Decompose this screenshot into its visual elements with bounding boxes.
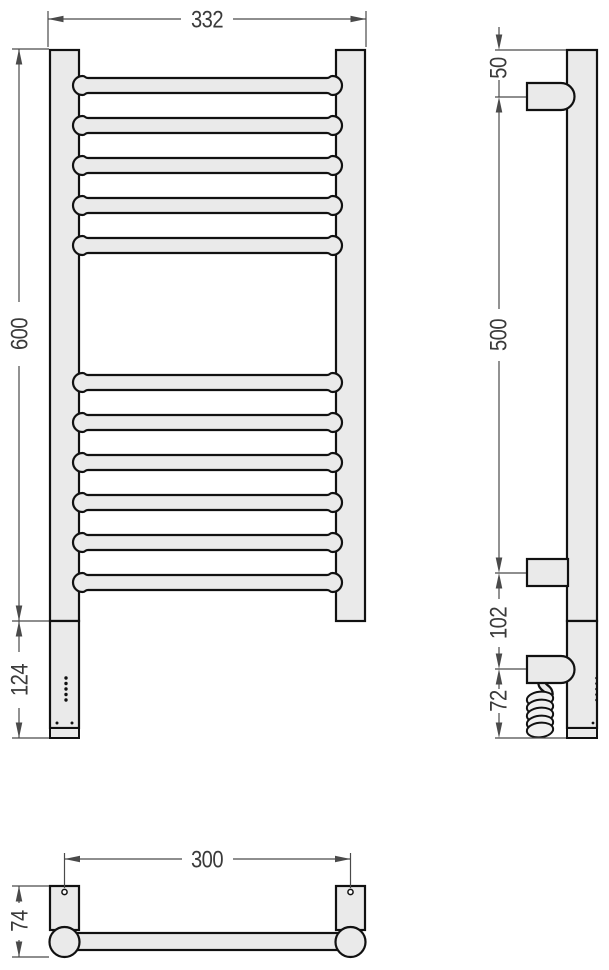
dim-depth: 74 <box>6 886 49 957</box>
dim-top-to-upper-bracket: 50 <box>485 27 512 97</box>
side-post <box>567 50 597 621</box>
side-button-mark <box>592 722 595 725</box>
crossbar <box>70 933 344 950</box>
rail <box>73 116 342 135</box>
post-section-right <box>336 927 366 957</box>
dim-mounting-centers-label: 300 <box>191 846 223 873</box>
front-left-post <box>50 50 79 621</box>
side-bottom-cap <box>567 728 597 738</box>
dim-bracket-spacing-label: 500 <box>485 319 512 351</box>
rail <box>73 373 342 392</box>
dim-control-height-label: 124 <box>6 664 33 696</box>
rail <box>73 236 342 255</box>
dim-bracket-to-inlet-label: 102 <box>485 607 512 639</box>
front-rails <box>73 76 342 592</box>
mounting-hole-right <box>348 889 353 894</box>
bottom-view: 300 74 <box>6 846 366 957</box>
cable-inlet-bracket <box>527 656 575 683</box>
rail <box>73 196 342 215</box>
bottom-cap <box>50 728 79 738</box>
dim-bracket-to-inlet: 102 <box>485 573 512 669</box>
power-cable-coil <box>526 690 554 738</box>
post-section-left <box>50 927 80 957</box>
mounting-hole-left <box>62 889 67 894</box>
dim-front-height: 600 <box>6 49 49 621</box>
rail <box>73 453 342 472</box>
rail <box>73 156 342 175</box>
dim-top-offset-label: 50 <box>485 57 512 79</box>
rail <box>73 573 342 592</box>
rail <box>73 413 342 432</box>
dim-front-width: 332 <box>48 6 366 47</box>
dim-front-width-label: 332 <box>191 6 223 33</box>
dim-inlet-to-bottom-label: 72 <box>485 690 512 712</box>
drawing-sheet: 332 600 124 <box>0 0 609 970</box>
wall-bracket-upper <box>527 83 575 110</box>
wall-bracket-lower <box>527 559 568 586</box>
dim-depth-label: 74 <box>6 910 33 932</box>
rail <box>73 533 342 552</box>
dim-bracket-spacing: 500 <box>485 97 512 573</box>
dim-front-height-label: 600 <box>6 318 33 350</box>
front-right-post <box>336 50 365 621</box>
dim-mounting-centers: 300 <box>65 846 351 888</box>
front-view: 332 600 124 <box>6 6 366 738</box>
rail <box>73 493 342 512</box>
side-view: 50 500 102 72 <box>485 27 598 739</box>
dim-inlet-to-bottom: 72 <box>485 669 512 738</box>
rail <box>73 76 342 95</box>
control-housing <box>50 621 79 728</box>
dim-control-height: 124 <box>6 621 49 738</box>
technical-drawing: 332 600 124 <box>0 0 609 970</box>
